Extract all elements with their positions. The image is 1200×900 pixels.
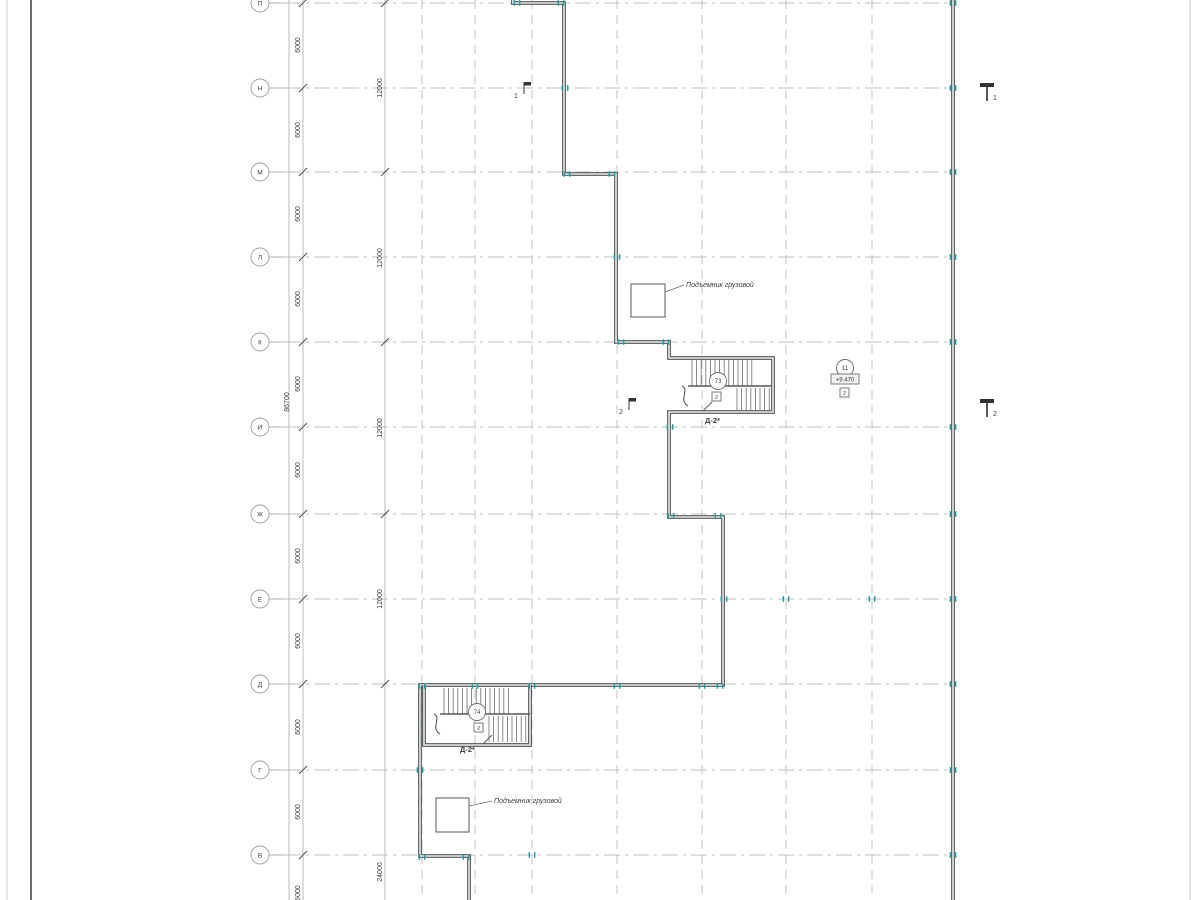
column-tick [950, 767, 952, 773]
dimension-12000: 12000 [377, 589, 384, 609]
column-tick [424, 683, 426, 689]
column-tick [721, 596, 723, 602]
column-tick [950, 169, 952, 175]
grid-row-label: И [258, 424, 263, 431]
column-tick [567, 85, 569, 91]
column-tick [562, 85, 564, 91]
column-tick [614, 171, 616, 177]
column-tick [614, 683, 616, 689]
dimension-12000: 24000 [377, 862, 384, 882]
column-tick [667, 424, 669, 430]
column-tick [950, 596, 952, 602]
column-tick [569, 171, 571, 177]
lift-shaft [631, 284, 665, 317]
column-tick [668, 513, 670, 519]
column-tick [955, 424, 957, 430]
grid-row-label: Д [258, 681, 263, 688]
column-tick [419, 683, 421, 689]
dimension-6000: 6000 [295, 885, 302, 900]
section-flag [629, 398, 636, 402]
column-tick [704, 683, 706, 689]
column-tick [529, 683, 531, 689]
column-tick [722, 683, 724, 689]
grid-row-label: Е [258, 596, 263, 603]
stair-rail [682, 386, 688, 406]
column-tick [672, 424, 674, 430]
column-tick [955, 339, 957, 345]
type-square-label: 2 [843, 391, 846, 397]
section-number: 2 [993, 411, 997, 418]
grid-row-label: Н [258, 85, 263, 92]
column-tick [614, 254, 616, 260]
column-tick [422, 767, 424, 773]
dimension-12000: 12000 [377, 78, 384, 98]
section-flag [980, 399, 994, 403]
column-tick [564, 171, 566, 177]
level-value: +9.470 [836, 378, 855, 384]
column-tick [720, 513, 722, 519]
dimension-6000: 6000 [295, 719, 302, 735]
dimension-6000: 6000 [295, 804, 302, 820]
column-tick [558, 0, 560, 6]
column-tick [419, 854, 421, 860]
door-leaf [483, 735, 492, 744]
dimension-6000: 6000 [295, 548, 302, 564]
column-tick [514, 0, 516, 6]
dimension-12000: 12000 [377, 418, 384, 438]
column-tick [477, 683, 479, 689]
lift-annotation: Подъемник грузовой [494, 797, 562, 805]
column-tick [468, 854, 470, 860]
room-number: 11 [842, 366, 849, 372]
column-tick [788, 596, 790, 602]
column-tick [715, 513, 717, 519]
lift-shaft [436, 798, 469, 832]
column-tick [783, 596, 785, 602]
dimension-6000: 6000 [295, 206, 302, 222]
grid-row-label: М [257, 169, 262, 176]
column-tick [950, 424, 952, 430]
column-tick [424, 854, 426, 860]
section-flag [980, 83, 994, 87]
column-tick [673, 513, 675, 519]
stair-rail [434, 714, 440, 734]
door-mark-label: Д-2* [705, 416, 720, 425]
lift-leader [665, 285, 684, 292]
dimension-6000: 6000 [295, 122, 302, 138]
section-number: 1 [993, 95, 997, 102]
column-tick [563, 0, 565, 6]
grid-row-label: П [258, 0, 263, 7]
room-number: 73 [715, 379, 722, 385]
column-tick [869, 596, 871, 602]
column-tick [618, 339, 620, 345]
grid-row-label: Л [258, 254, 262, 261]
column-tick [955, 852, 957, 858]
column-tick [609, 171, 611, 177]
column-tick [955, 254, 957, 260]
wall [420, 0, 773, 900]
column-tick [668, 339, 670, 345]
column-tick [519, 0, 521, 6]
drawing-sheet: ПНМЛКИЖЕДГВ86700600060006000600060006000… [0, 0, 1200, 900]
column-tick [955, 681, 957, 687]
grid-row-label: В [258, 852, 262, 859]
column-tick [472, 683, 474, 689]
dimension-overall: 86700 [284, 392, 291, 412]
dimension-6000: 6000 [295, 291, 302, 307]
column-tick [955, 767, 957, 773]
column-tick [950, 511, 952, 517]
door-mark-label: Д-2* [460, 745, 475, 754]
section-number: 2 [619, 409, 623, 416]
type-square-label: 2 [477, 726, 480, 732]
lift-leader [469, 801, 492, 806]
dimension-6000: 6000 [295, 376, 302, 392]
column-tick [955, 511, 957, 517]
column-tick [663, 339, 665, 345]
column-tick [950, 339, 952, 345]
section-flag [524, 82, 531, 86]
column-tick [619, 254, 621, 260]
column-tick [717, 683, 719, 689]
type-square-label: 2 [715, 395, 718, 401]
floor-plan-canvas: ПНМЛКИЖЕДГВ86700600060006000600060006000… [0, 0, 1200, 900]
door-leaf [703, 402, 712, 411]
column-tick [417, 767, 419, 773]
column-tick [534, 852, 536, 858]
column-tick [950, 85, 952, 91]
column-tick [950, 0, 952, 6]
dimension-6000: 6000 [295, 633, 302, 649]
column-tick [950, 254, 952, 260]
column-tick [950, 681, 952, 687]
room-number: 74 [474, 710, 481, 716]
dimension-12000: 12000 [377, 248, 384, 268]
dimension-6000: 6000 [295, 37, 302, 53]
grid-row-label: Ж [257, 511, 263, 518]
column-tick [699, 683, 701, 689]
column-tick [529, 852, 531, 858]
dimension-6000: 6000 [295, 462, 302, 478]
section-number: 1 [514, 93, 518, 100]
column-tick [726, 596, 728, 602]
column-tick [950, 852, 952, 858]
column-tick [955, 596, 957, 602]
column-tick [955, 169, 957, 175]
column-tick [619, 683, 621, 689]
column-tick [534, 683, 536, 689]
lift-annotation: Подъемник грузовой [686, 281, 754, 289]
column-tick [463, 854, 465, 860]
column-tick [623, 339, 625, 345]
column-tick [955, 0, 957, 6]
wall-core [420, 0, 773, 900]
column-tick [874, 596, 876, 602]
column-tick [955, 85, 957, 91]
grid-row-label: Г [258, 767, 262, 774]
grid-row-label: К [258, 339, 262, 346]
